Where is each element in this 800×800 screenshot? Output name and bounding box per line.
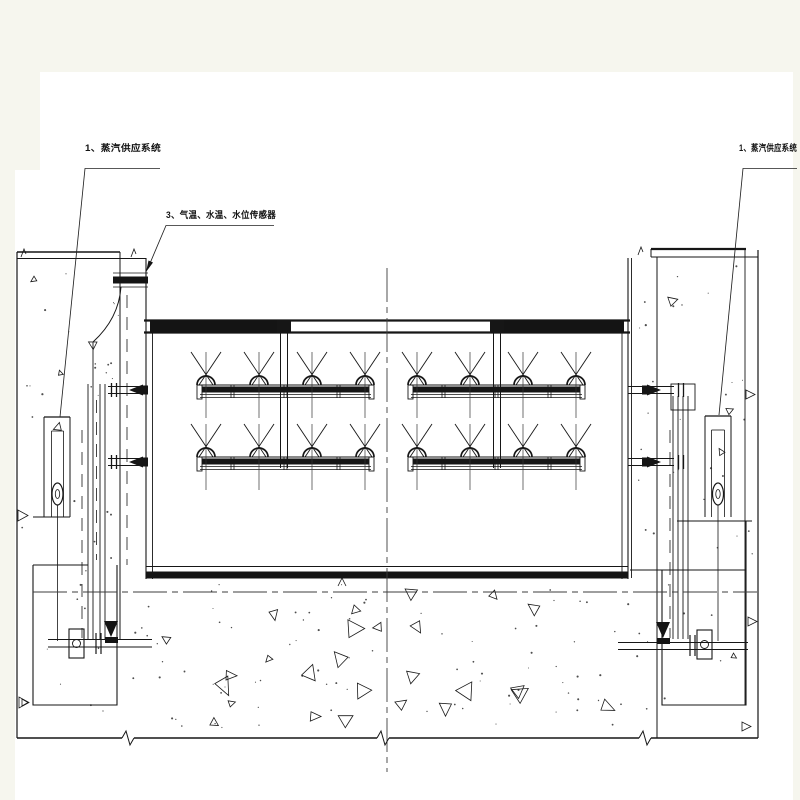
stipple-dot	[159, 676, 161, 678]
stipple-dot	[481, 673, 483, 675]
stipple-dot	[258, 707, 259, 708]
stipple-dot	[454, 704, 456, 706]
stipple-dot	[743, 419, 745, 421]
stipple-dot	[553, 600, 554, 601]
stipple-dot	[211, 590, 212, 591]
stipple-dot	[95, 363, 97, 365]
stipple-dot	[627, 603, 629, 605]
stipple-dot	[668, 584, 669, 585]
stipple-dot	[221, 727, 222, 728]
stipple-dot	[426, 711, 427, 712]
stipple-dot	[80, 584, 82, 586]
stipple-dot	[677, 276, 678, 277]
stipple-dot	[531, 652, 533, 654]
stipple-dot	[157, 643, 158, 644]
stipple-dot	[735, 265, 737, 267]
stipple-dot	[586, 601, 588, 603]
stipple-dot	[473, 661, 475, 663]
label-steam-system-right: 1、蒸汽供应系统	[739, 142, 797, 153]
stipple-dot	[317, 669, 319, 671]
stipple-dot	[90, 386, 92, 388]
stipple-dot	[645, 324, 647, 326]
stipple-dot	[84, 607, 86, 609]
stipple-dot	[224, 686, 225, 687]
stipple-dot	[577, 676, 579, 678]
stipple-dot	[598, 700, 599, 701]
stipple-dot	[515, 628, 517, 630]
stipple-dot	[219, 621, 221, 623]
stipple-dot	[44, 309, 46, 311]
stipple-dot	[731, 382, 732, 383]
stipple-dot	[647, 641, 648, 642]
stipple-dot	[175, 719, 176, 720]
stipple-dot	[330, 709, 332, 711]
stipple-dot	[644, 301, 646, 303]
stipple-dot	[472, 641, 473, 642]
stipple-dot	[258, 725, 259, 726]
stipple-dot	[296, 640, 297, 641]
stipple-dot	[508, 695, 510, 697]
label-sensors: 3、气温、水温、水位传感器	[166, 209, 276, 220]
stipple-dot	[107, 364, 109, 366]
stipple-dot	[535, 625, 537, 627]
stipple-dot	[678, 469, 679, 470]
stipple-dot	[363, 602, 365, 604]
stipple-dot	[549, 589, 551, 591]
stipple-dot	[653, 532, 655, 534]
stipple-dot	[652, 381, 654, 383]
stipple-dot	[85, 570, 86, 571]
stipple-dot	[113, 302, 114, 303]
stipple-dot	[60, 684, 61, 685]
stipple-dot	[556, 666, 557, 667]
stipple-dot	[32, 416, 34, 418]
stipple-dot	[349, 657, 350, 658]
stipple-dot	[568, 692, 569, 693]
stipple-dot	[456, 669, 458, 671]
stipple-dot	[599, 674, 601, 676]
stipple-dot	[673, 472, 674, 473]
stipple-dot	[703, 499, 704, 500]
label-steam-system-left: 1、蒸汽供应系统	[85, 142, 161, 153]
stipple-dot	[614, 631, 615, 632]
stipple-dot	[579, 600, 581, 602]
stipple-dot	[213, 684, 214, 685]
stipple-dot	[680, 419, 681, 420]
stipple-dot	[510, 703, 511, 704]
stipple-dot	[639, 327, 640, 328]
stipple-dot	[620, 703, 622, 705]
stipple-dot	[711, 614, 713, 616]
paper-sheet	[40, 72, 793, 172]
stipple-dot	[528, 667, 529, 668]
stipple-dot	[106, 511, 108, 513]
stipple-dot	[26, 385, 28, 387]
stipple-dot	[47, 649, 48, 650]
stipple-dot	[335, 682, 337, 684]
stipple-dot	[574, 641, 575, 642]
stipple-dot	[21, 527, 23, 529]
stipple-dot	[134, 632, 136, 634]
stipple-dot	[480, 680, 481, 681]
stipple-dot	[260, 680, 262, 682]
stipple-dot	[664, 697, 666, 699]
stipple-dot	[612, 724, 614, 726]
stipple-dot	[219, 584, 220, 585]
stipple-dot	[76, 598, 78, 600]
stipple-dot	[708, 293, 709, 294]
stipple-dot	[308, 612, 310, 614]
stipple-dot	[162, 661, 163, 662]
stipple-dot	[171, 717, 173, 719]
stipple-dot	[638, 480, 639, 481]
stipple-dot	[326, 684, 327, 685]
stipple-dot	[214, 723, 215, 724]
stipple-dot	[41, 393, 43, 395]
stipple-dot	[295, 611, 297, 613]
stipple-dot	[118, 315, 119, 316]
stipple-dot	[102, 710, 103, 711]
stipple-dot	[349, 618, 351, 620]
stipple-dot	[710, 467, 712, 469]
stipple-dot	[722, 475, 724, 477]
stipple-dot	[289, 644, 290, 645]
stipple-dot	[672, 305, 674, 307]
stipple-dot	[212, 608, 213, 609]
stipple-dot	[181, 725, 183, 727]
stipple-dot	[576, 709, 578, 711]
stipple-dot	[748, 530, 750, 532]
sensor-conduit-band	[113, 277, 148, 284]
stipple-dot	[742, 380, 743, 381]
stipple-dot	[29, 385, 30, 386]
stipple-dot	[638, 633, 640, 635]
stipple-dot	[736, 536, 737, 537]
stipple-dot	[90, 704, 92, 706]
stipple-dot	[110, 362, 112, 364]
stipple-dot	[636, 655, 638, 657]
stipple-dot	[331, 597, 332, 598]
stipple-dot	[110, 557, 112, 559]
stipple-dot	[255, 682, 256, 683]
stipple-dot	[148, 606, 150, 608]
stipple-dot	[132, 677, 134, 679]
stipple-dot	[577, 698, 579, 700]
engineering-drawing-canvas: 1、蒸汽供应系统 3、气温、水温、水位传感器 1、蒸汽供应系统	[0, 0, 800, 800]
stipple-dot	[98, 395, 99, 396]
stipple-dot	[646, 708, 648, 710]
stipple-dot	[110, 514, 112, 516]
stipple-dot	[94, 541, 96, 543]
stipple-dot	[683, 612, 685, 614]
stipple-dot	[441, 633, 442, 634]
stipple-dot	[717, 547, 719, 549]
stipple-dot	[645, 529, 647, 531]
stipple-dot	[720, 660, 721, 661]
stipple-dot	[73, 500, 75, 502]
stipple-dot	[752, 553, 753, 554]
stipple-dot	[365, 599, 367, 601]
stipple-dot	[303, 619, 304, 620]
stipple-dot	[347, 689, 348, 690]
stipple-dot	[647, 412, 648, 413]
stipple-dot	[725, 394, 727, 396]
stipple-dot	[114, 303, 115, 304]
stipple-dot	[146, 635, 148, 637]
stipple-dot	[341, 584, 342, 585]
stipple-dot	[141, 627, 143, 629]
stipple-dot	[640, 449, 642, 451]
stipple-dot	[420, 613, 421, 614]
stipple-dot	[318, 629, 320, 631]
stipple-dot	[220, 692, 222, 694]
stipple-dot	[372, 650, 374, 652]
stipple-dot	[495, 724, 496, 725]
stipple-dot	[94, 367, 96, 369]
stipple-dot	[65, 273, 66, 274]
gate-steam-system-drawing: 1、蒸汽供应系统 3、气温、水温、水位传感器 1、蒸汽供应系统	[0, 0, 800, 800]
stipple-dot	[106, 372, 107, 373]
stipple-dot	[462, 708, 464, 710]
stipple-dot	[681, 304, 682, 305]
stipple-dot	[112, 378, 113, 379]
stipple-dot	[184, 671, 186, 673]
stipple-dot	[556, 712, 557, 713]
stipple-dot	[231, 627, 232, 628]
stipple-dot	[562, 682, 563, 683]
stipple-dot	[98, 648, 100, 650]
